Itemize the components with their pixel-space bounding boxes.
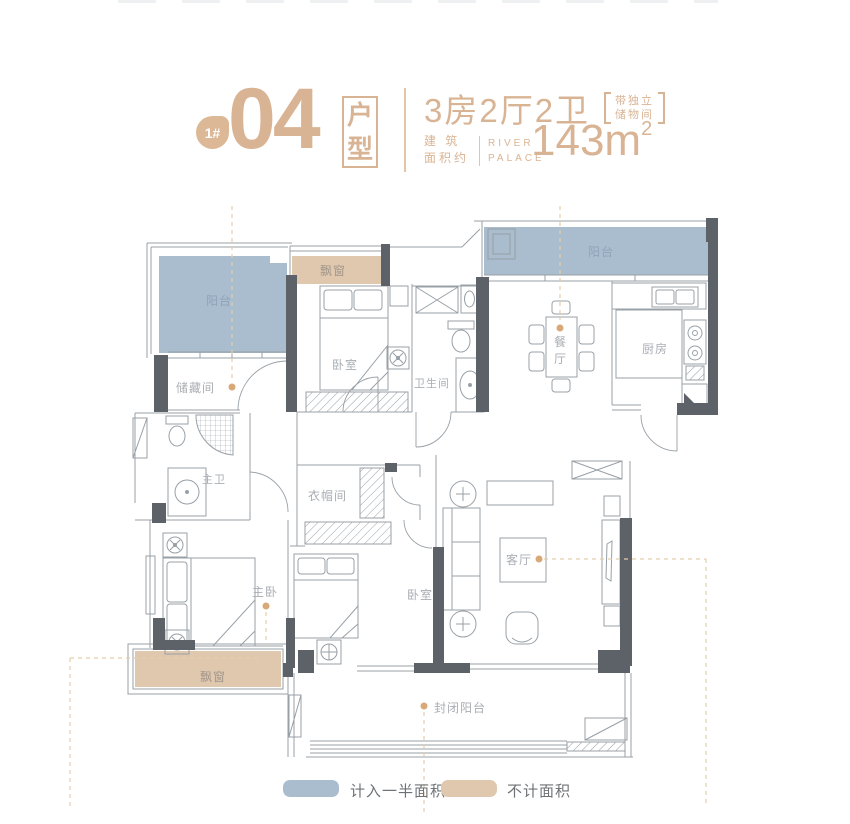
room-label-kitchen: 厨房 <box>642 340 668 357</box>
room-label-master-bedroom: 主卧 <box>252 583 278 600</box>
room-label-bathroom: 卫生间 <box>414 375 450 391</box>
legend-label-excluded: 不计面积 <box>507 780 571 801</box>
room-label-master-bath: 主卫 <box>202 471 226 487</box>
room-label-balcony-left: 阳台 <box>206 292 232 309</box>
room-label-bay-window-bottom: 飘窗 <box>200 668 226 685</box>
room-label-storage: 储藏间 <box>176 379 215 396</box>
room-label-bedroom-top: 卧室 <box>332 356 358 373</box>
room-label-bay-window-top: 飘窗 <box>320 262 346 279</box>
room-label-bedroom-bottom: 卧室 <box>407 586 433 603</box>
room-label-living: 客厅 <box>506 551 532 568</box>
room-label-cloakroom: 衣帽间 <box>308 487 347 504</box>
floorplan-drawing <box>0 0 850 824</box>
legend-swatch-excluded <box>441 780 497 797</box>
room-label-dining: 餐厅 <box>553 334 568 368</box>
room-label-balcony-right: 阳台 <box>588 243 614 260</box>
room-label-enclosed-balcony: 封闭阳台 <box>434 699 486 716</box>
floorplan-page: 1# 04 户型 3房2厅2卫 带独立 储物间 建 筑 面积约 RIVER PA… <box>0 0 850 824</box>
legend-label-half-area: 计入一半面积 <box>350 780 446 801</box>
legend-swatch-half-area <box>283 780 339 797</box>
